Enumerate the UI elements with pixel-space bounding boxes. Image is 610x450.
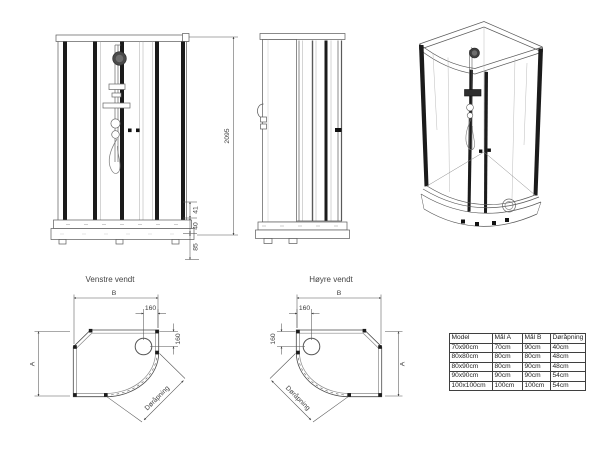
plan-right-width-label: B xyxy=(337,290,342,297)
shower-hose xyxy=(109,139,120,173)
spec-header-row: Model Mål A Mål B Døråpning xyxy=(450,334,586,344)
spec-row: 90x90cm 90cm 90cm 54cm xyxy=(450,372,586,382)
plan-left-door-label: Døråpning xyxy=(143,384,171,412)
dim-total-height: 2095 xyxy=(224,128,231,143)
front-elevation-view: 2095 41 40 85 xyxy=(51,34,238,260)
spec-row: 100x100cm 100cm 100cm 54cm xyxy=(450,381,586,391)
shower-shelf xyxy=(103,103,130,108)
plan-left-dimensions xyxy=(35,295,186,423)
side-elevation-view xyxy=(256,34,350,244)
perspective-view xyxy=(419,22,543,227)
spec-header-a: Mål A xyxy=(493,334,523,344)
spec-header-door: Døråpning xyxy=(551,334,586,344)
shower-column xyxy=(103,45,130,173)
plan-right-door-arc xyxy=(298,352,350,395)
plan-view-right: Høyre vendt xyxy=(270,275,407,422)
plan-left-drain-x: 160 xyxy=(145,305,157,312)
plan-left-title: Venstre vendt xyxy=(86,275,136,284)
spec-row: 80x90cm 80cm 90cm 48cm xyxy=(450,362,586,372)
perspective-base xyxy=(421,152,541,226)
plan-view-left: Venstre vendt xyxy=(30,275,186,422)
dim-upper: 41 xyxy=(193,206,200,214)
spec-header-model: Model xyxy=(450,334,493,344)
front-dark-profiles xyxy=(63,42,185,221)
mixer-knob xyxy=(111,119,120,128)
dim-base: 85 xyxy=(193,243,200,251)
plan-right-dimensions xyxy=(270,295,403,423)
plan-right-drain-x: 160 xyxy=(299,305,311,312)
side-base-tray xyxy=(256,222,350,244)
plan-left-drain-y: 160 xyxy=(175,333,182,345)
side-door-handle xyxy=(335,128,342,132)
plan-right-drain xyxy=(303,338,320,355)
spec-table: Model Mål A Mål B Døråpning 70x90cm 70cm… xyxy=(449,333,586,391)
plan-left-door-arc xyxy=(105,352,157,395)
plan-left-wall-inner xyxy=(77,333,156,393)
top-rim xyxy=(420,22,543,75)
plan-right-door-label: Døråpning xyxy=(284,384,312,412)
plan-right-wall-inner xyxy=(299,333,378,393)
plan-left-drain xyxy=(135,338,152,355)
spec-header-b: Mål B xyxy=(523,334,551,344)
door-handles xyxy=(128,129,140,133)
front-base-tray xyxy=(51,220,194,244)
side-back-panel xyxy=(263,40,297,223)
plan-right-depth-label: A xyxy=(400,361,407,366)
spec-row: 80x80cm 80cm 80cm 48cm xyxy=(450,353,586,363)
plan-right-drain-y: 160 xyxy=(270,333,277,345)
plan-left-depth-label: A xyxy=(30,361,37,366)
front-top-rail xyxy=(56,35,188,42)
drawing-sheet: 2095 41 40 85 xyxy=(0,0,610,450)
spec-row: 70x90cm 70cm 90cm 40cm xyxy=(450,343,586,353)
plan-left-wall-outer xyxy=(73,330,158,397)
plan-right-title: Høyre vendt xyxy=(309,275,353,284)
plan-right-wall-outer xyxy=(296,330,381,397)
dim-mid: 40 xyxy=(193,222,200,230)
plan-left-width-label: B xyxy=(112,290,117,297)
